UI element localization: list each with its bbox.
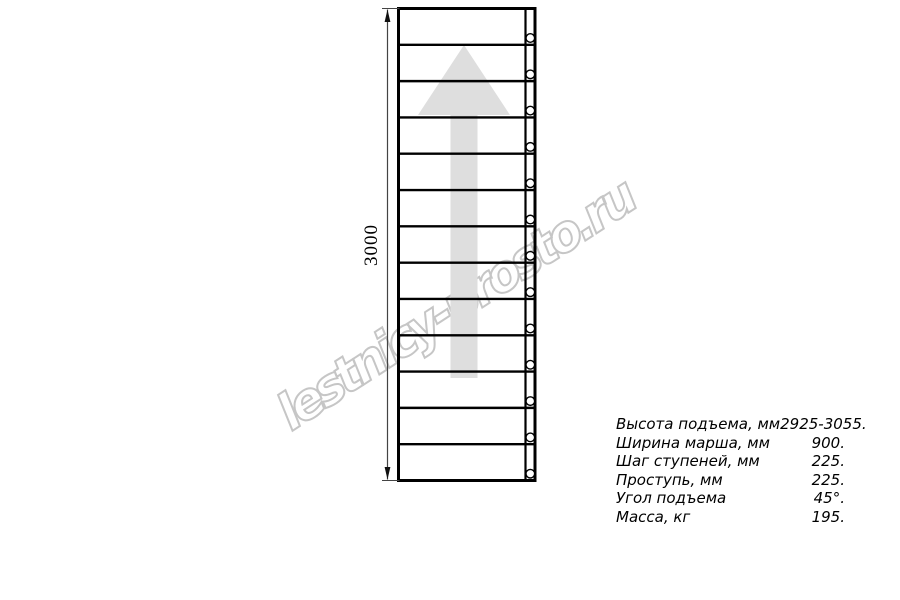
bolt-circle: [526, 324, 535, 333]
spec-row: Угол подъема 45°.: [616, 489, 845, 508]
dimension-arrow-down: [385, 467, 391, 480]
spec-row: Масса, кг 195.: [616, 508, 845, 527]
bolt-circle: [526, 433, 535, 442]
spec-row: Проступь, мм 225.: [616, 471, 845, 490]
spec-value: 45°.: [814, 489, 845, 508]
spec-value: 225.: [812, 452, 845, 471]
bolt-circle: [526, 288, 535, 297]
spec-label: Шаг ступеней, мм: [616, 452, 760, 471]
dimension-label: 3000: [361, 224, 382, 266]
spec-value: 2925-3055.: [780, 415, 867, 434]
bolt-circle: [526, 70, 535, 79]
spec-label: Проступь, мм: [616, 471, 723, 490]
bolt-circle: [526, 106, 535, 115]
spec-label: Высота подъема, мм: [616, 415, 780, 434]
spec-row: Шаг ступеней, мм 225.: [616, 452, 845, 471]
spec-label: Ширина марша, мм: [616, 434, 770, 453]
bolt-circle: [526, 397, 535, 406]
spec-value: 225.: [812, 471, 845, 490]
bolt-circle: [526, 215, 535, 224]
spec-row: Ширина марша, мм 900.: [616, 434, 845, 453]
dimension-arrow-up: [385, 10, 391, 23]
spec-label: Угол подъема: [616, 489, 726, 508]
bolt-circle: [526, 469, 535, 478]
bolt-circle: [526, 143, 535, 152]
bolt-circle: [526, 360, 535, 369]
page-canvas: lestnicy-prosto.ru 3000 Высота подъема, …: [0, 0, 900, 600]
spec-value: 900.: [812, 434, 845, 453]
bolt-circle: [526, 179, 535, 188]
spec-table: Высота подъема, мм 2925-3055. Ширина мар…: [616, 415, 845, 527]
direction-arrow: [418, 45, 510, 378]
bolt-circle: [526, 252, 535, 261]
spec-value: 195.: [812, 508, 845, 527]
spec-label: Масса, кг: [616, 508, 690, 527]
spec-row: Высота подъема, мм 2925-3055.: [616, 415, 845, 434]
bolt-circle: [526, 34, 535, 43]
